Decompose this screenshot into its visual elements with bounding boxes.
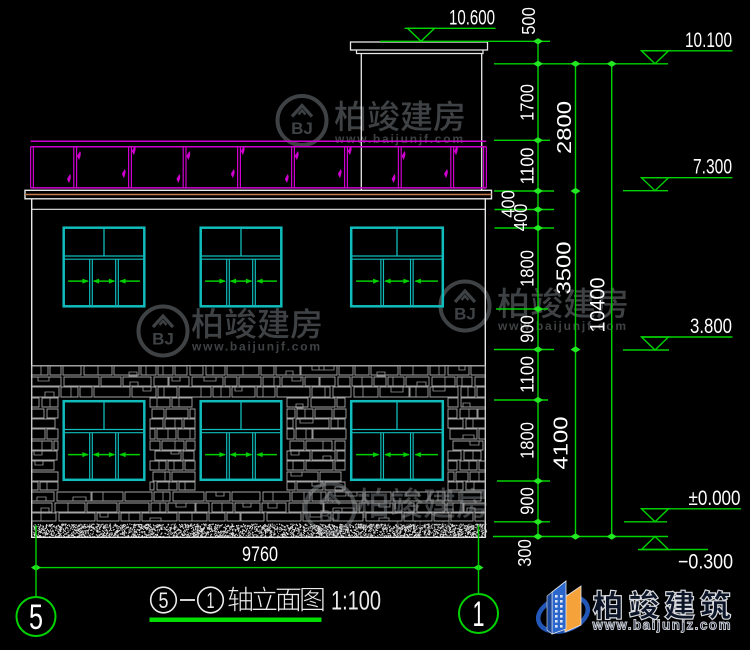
svg-text:2800: 2800 [553,101,576,154]
svg-text:BJ: BJ [319,507,341,526]
svg-text:1800: 1800 [517,250,538,287]
svg-text:1800: 1800 [517,422,538,459]
svg-text:BJ: BJ [152,330,174,349]
svg-text:www.baijunjz.com: www.baijunjz.com [592,618,731,633]
svg-text:BJ: BJ [291,119,313,138]
svg-text:300: 300 [514,539,535,567]
svg-text:5: 5 [29,598,43,637]
svg-text:3500: 3500 [552,242,575,295]
svg-text:1700: 1700 [517,84,538,121]
svg-text:9760: 9760 [242,543,278,566]
svg-text:1100: 1100 [517,148,538,185]
svg-text:10.100: 10.100 [685,29,732,52]
svg-text:3.800: 3.800 [690,315,732,338]
svg-text:1:100: 1:100 [331,586,381,616]
svg-text:1: 1 [473,595,485,634]
svg-text:5: 5 [159,588,169,613]
svg-text:400: 400 [510,204,531,232]
svg-text:www.baijunjf.com: www.baijunjf.com [334,132,463,146]
svg-text:900: 900 [517,487,538,515]
svg-text:10.600: 10.600 [449,6,495,29]
svg-text:1100: 1100 [517,356,538,393]
svg-text:BJ: BJ [454,305,476,324]
svg-text:1: 1 [207,588,215,613]
svg-text:500: 500 [518,7,539,35]
svg-text:±0.000: ±0.000 [689,487,741,510]
svg-text:10400: 10400 [586,277,610,332]
svg-text:−0.300: −0.300 [678,551,733,574]
svg-text:7.300: 7.300 [693,156,732,179]
svg-text:900: 900 [517,315,538,343]
svg-text:www.baijunjf.com: www.baijunjf.com [191,340,320,354]
svg-text:4100: 4100 [549,417,572,470]
